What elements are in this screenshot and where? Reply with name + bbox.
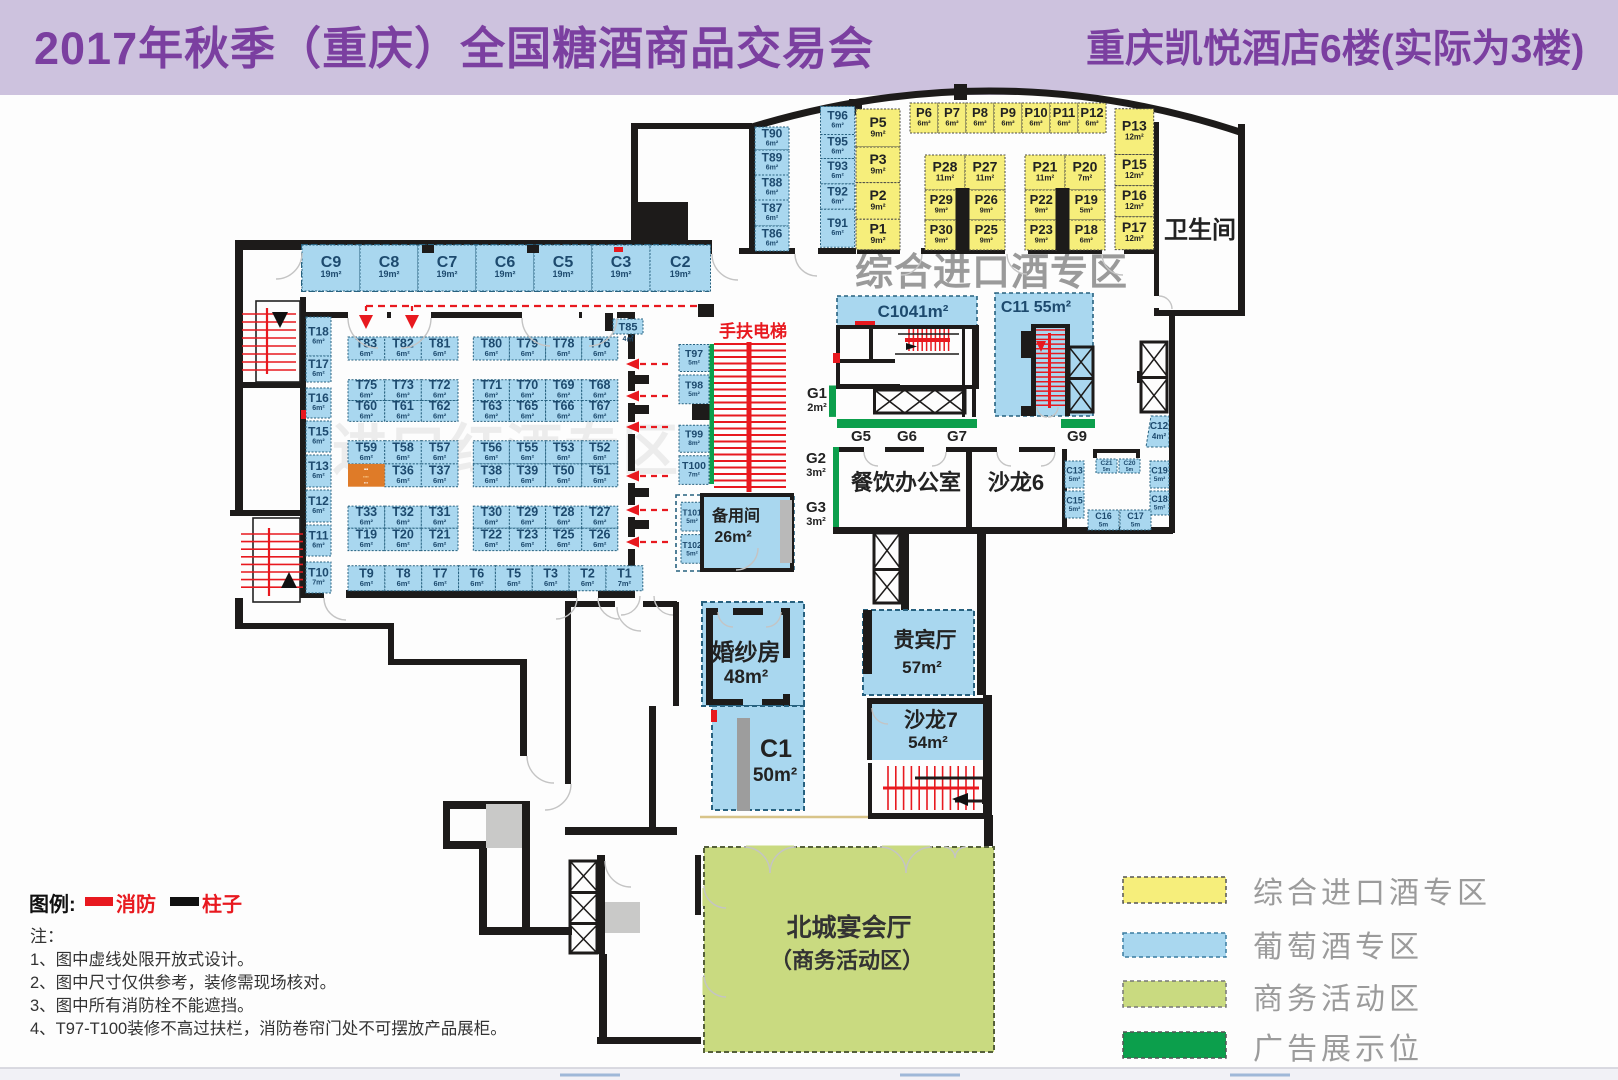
svg-text:5m²: 5m² [688,391,700,398]
svg-text:19m²: 19m² [670,269,691,279]
svg-text:T91: T91 [827,216,848,230]
svg-text:6m²: 6m² [973,119,987,128]
svg-text:T97: T97 [685,348,703,360]
svg-text:2、图中尺寸仅供参考，装修需现场核对。: 2、图中尺寸仅供参考，装修需现场核对。 [30,973,336,992]
svg-text:6m²: 6m² [521,453,535,462]
svg-text:6m²: 6m² [360,453,374,462]
svg-text:4m²: 4m² [1152,432,1167,441]
svg-text:6m²: 6m² [521,349,535,358]
svg-text:6m²: 6m² [831,149,844,156]
svg-text:6m²: 6m² [485,476,499,485]
svg-text:P27: P27 [973,159,998,175]
svg-text:6m²: 6m² [360,411,374,420]
svg-text:9m²: 9m² [935,236,949,245]
svg-text:5m: 5m [1131,522,1141,529]
svg-text:综合进口酒专区: 综合进口酒专区 [1253,877,1491,910]
svg-text:C1: C1 [760,735,792,763]
svg-text:6m²: 6m² [593,540,607,549]
svg-text:G5: G5 [851,428,871,445]
svg-text:7m²: 7m² [688,472,700,479]
svg-text:6m²: 6m² [1080,236,1094,245]
svg-text:G9: G9 [1067,428,1087,445]
svg-text:T100: T100 [682,460,706,472]
svg-text:C11 55m²: C11 55m² [1001,299,1071,316]
svg-text:6m²: 6m² [593,411,607,420]
svg-text:6m²: 6m² [433,540,447,549]
svg-text:11m²: 11m² [1036,174,1055,183]
svg-text:6m²: 6m² [507,579,521,588]
svg-text:备用间: 备用间 [711,506,760,525]
svg-text:P21: P21 [1033,159,1058,175]
svg-text:5m²: 5m² [686,550,698,557]
svg-text:12m²: 12m² [1125,171,1144,180]
svg-text:P28: P28 [933,159,958,175]
svg-text:6m²: 6m² [433,518,447,527]
svg-text:5m²: 5m² [688,360,700,367]
svg-text:▪▪▪▪: ▪▪▪▪ [363,474,369,479]
svg-text:6m²: 6m² [312,543,325,550]
svg-text:T17: T17 [308,357,329,371]
svg-text:▪▪: ▪▪ [364,467,368,473]
svg-text:19m²: 19m² [320,269,341,279]
svg-text:餐饮办公室: 餐饮办公室 [851,470,961,495]
svg-text:T86: T86 [762,227,783,241]
svg-text:12m²: 12m² [1125,133,1144,142]
svg-text:6m²: 6m² [1029,119,1043,128]
svg-text:6m²: 6m² [831,173,844,180]
svg-text:6m²: 6m² [360,349,374,358]
svg-text:6m²: 6m² [557,476,571,485]
svg-text:5m: 5m [1126,467,1134,473]
svg-text:19m²: 19m² [552,269,573,279]
svg-text:6m²: 6m² [396,476,410,485]
svg-text:综合进口酒专区: 综合进口酒专区 [855,252,1128,294]
svg-text:6m²: 6m² [396,518,410,527]
svg-text:5m: 5m [1099,522,1109,529]
svg-text:G2: G2 [806,450,826,467]
svg-text:6m²: 6m² [557,349,571,358]
svg-text:注：: 注： [30,927,64,946]
svg-text:6m²: 6m² [360,579,374,588]
svg-text:6m²: 6m² [397,579,411,588]
svg-text:9m²: 9m² [870,165,885,175]
svg-text:6m²: 6m² [433,579,447,588]
svg-text:5m²: 5m² [1080,206,1094,215]
svg-text:6m²: 6m² [396,349,410,358]
svg-text:19m²: 19m² [494,269,515,279]
svg-text:6m²: 6m² [766,141,779,148]
svg-text:19m²: 19m² [436,269,457,279]
svg-text:7m²: 7m² [618,579,632,588]
svg-text:3m²: 3m² [806,467,826,479]
svg-text:5m²: 5m² [1154,505,1166,512]
svg-text:G7: G7 [947,428,967,445]
svg-text:T88: T88 [762,176,783,190]
svg-text:C15: C15 [1066,496,1083,506]
svg-text:T90: T90 [762,127,783,141]
svg-text:6m²: 6m² [312,371,325,378]
svg-text:4㎡: 4㎡ [623,334,634,343]
svg-text:沙龙6: 沙龙6 [988,470,1044,495]
svg-text:卫生间: 卫生间 [1164,217,1236,244]
svg-text:9m²: 9m² [980,206,994,215]
svg-text:6m²: 6m² [544,579,558,588]
svg-text:消防: 消防 [116,892,156,916]
svg-text:9m²: 9m² [980,236,994,245]
svg-text:P17: P17 [1122,219,1147,235]
svg-text:6m²: 6m² [917,119,931,128]
svg-text:T102: T102 [682,540,702,550]
svg-text:4、T97-T100装修不高过扶栏，消防卷帘门处不可摆放产品: 4、T97-T100装修不高过扶栏，消防卷帘门处不可摆放产品展柜。 [30,1019,507,1038]
svg-text:5m²: 5m² [686,518,698,525]
svg-text:9m²: 9m² [870,201,885,211]
svg-text:6m²: 6m² [312,439,325,446]
svg-text:T16: T16 [308,391,329,405]
svg-text:19m²: 19m² [378,269,399,279]
svg-text:2017年秋季（重庆）全国糖酒商品交易会: 2017年秋季（重庆）全国糖酒商品交易会 [34,23,874,74]
svg-text:重庆凯悦酒店6楼(实际为3楼): 重庆凯悦酒店6楼(实际为3楼) [1086,28,1584,71]
svg-text:1、图中虚线处限开放式设计。: 1、图中虚线处限开放式设计。 [30,950,254,969]
svg-text:6m²: 6m² [831,199,844,206]
svg-text:P20: P20 [1073,159,1098,175]
svg-text:T87: T87 [762,201,783,215]
svg-text:贵宾厅: 贵宾厅 [894,628,957,652]
svg-text:6m²: 6m² [557,518,571,527]
svg-text:48m²: 48m² [724,667,768,688]
svg-text:7m²: 7m² [312,580,325,587]
svg-text:T12: T12 [308,494,329,508]
svg-text:6m²: 6m² [945,119,959,128]
svg-text:T93: T93 [827,159,848,173]
svg-text:葡萄酒专区: 葡萄酒专区 [1253,931,1423,964]
svg-text:6m²: 6m² [1057,119,1071,128]
svg-text:6m²: 6m² [360,540,374,549]
svg-text:12m²: 12m² [1125,202,1144,211]
svg-text:6m²: 6m² [485,453,499,462]
svg-text:9m²: 9m² [870,129,885,139]
svg-text:G1: G1 [807,385,827,402]
svg-text:5m²: 5m² [1069,476,1081,483]
svg-text:6m²: 6m² [396,453,410,462]
svg-text:6m²: 6m² [485,411,499,420]
svg-text:T18: T18 [308,325,329,339]
svg-text:9m²: 9m² [935,206,949,215]
svg-text:6m²: 6m² [1085,119,1099,128]
svg-text:6m²: 6m² [557,453,571,462]
svg-text:7m²: 7m² [1078,174,1093,183]
svg-text:54m²: 54m² [908,733,948,752]
svg-text:T92: T92 [827,185,848,199]
svg-text:G3: G3 [806,499,826,516]
svg-text:2m²: 2m² [807,402,827,414]
svg-text:C16: C16 [1095,511,1112,521]
svg-text:C1041m²: C1041m² [878,302,949,321]
svg-text:C18: C18 [1151,494,1168,504]
svg-text:6m²: 6m² [312,405,325,412]
svg-text:T13: T13 [308,459,329,473]
svg-text:沙龙7: 沙龙7 [904,708,958,732]
svg-text:北城宴会厅: 北城宴会厅 [786,913,911,942]
svg-text:C20: C20 [1124,460,1136,467]
svg-text:T101: T101 [682,508,702,518]
svg-text:T10: T10 [308,566,329,580]
svg-text:6m²: 6m² [312,508,325,515]
svg-text:T15: T15 [308,425,329,439]
svg-text:6m²: 6m² [581,579,595,588]
svg-text:6m²: 6m² [766,190,779,197]
svg-text:6m²: 6m² [360,518,374,527]
svg-text:6m²: 6m² [312,473,325,480]
svg-text:5m²: 5m² [1154,476,1166,483]
svg-text:T98: T98 [685,379,703,391]
svg-text:6m²: 6m² [593,453,607,462]
svg-text:6m²: 6m² [831,123,844,130]
svg-text:6m²: 6m² [521,476,535,485]
svg-text:6m²: 6m² [396,411,410,420]
svg-text:11m²: 11m² [976,174,995,183]
svg-text:12m²: 12m² [1125,234,1144,243]
svg-text:57m²: 57m² [902,658,942,677]
svg-text:P13: P13 [1122,118,1147,134]
svg-text:C21: C21 [1101,460,1113,467]
svg-text:6m²: 6m² [521,411,535,420]
svg-text:6m²: 6m² [521,540,535,549]
svg-text:6m²: 6m² [433,476,447,485]
svg-text:3、图中所有消防栓不能遮挡。: 3、图中所有消防栓不能遮挡。 [30,996,254,1015]
svg-text:手扶电梯: 手扶电梯 [719,321,787,341]
svg-text:P15: P15 [1122,156,1147,172]
svg-text:9m²: 9m² [1035,236,1049,245]
svg-text:T99: T99 [685,429,703,441]
svg-text:26m²: 26m² [714,529,751,546]
svg-text:3m²: 3m² [806,516,826,528]
svg-text:11m²: 11m² [936,174,955,183]
svg-text:T96: T96 [827,109,848,123]
svg-text:婚纱房: 婚纱房 [712,639,781,665]
svg-text:6m²: 6m² [433,453,447,462]
svg-text:50m²: 50m² [753,765,797,786]
svg-text:C13: C13 [1066,466,1083,476]
svg-text:广告展示位: 广告展示位 [1253,1033,1423,1066]
svg-text:T11: T11 [308,529,328,543]
svg-text:T95: T95 [827,135,848,149]
svg-text:6m²: 6m² [470,579,484,588]
svg-text:▪▪▪: ▪▪▪ [364,480,369,485]
svg-text:6m²: 6m² [766,241,779,248]
svg-text:6m²: 6m² [485,518,499,527]
svg-text:G6: G6 [897,428,917,445]
svg-text:图例:: 图例: [29,892,76,916]
svg-text:9m²: 9m² [1035,206,1049,215]
svg-text:6m²: 6m² [766,165,779,172]
svg-text:6m²: 6m² [485,349,499,358]
svg-text:19m²: 19m² [610,269,631,279]
svg-text:6m²: 6m² [593,476,607,485]
svg-text:6m²: 6m² [831,230,844,237]
svg-text:6m²: 6m² [557,540,571,549]
svg-text:6m²: 6m² [766,215,779,222]
svg-text:6m²: 6m² [521,518,535,527]
svg-text:6m²: 6m² [1001,119,1015,128]
svg-text:6m²: 6m² [557,411,571,420]
svg-text:6m²: 6m² [485,540,499,549]
svg-text:5m²: 5m² [1069,506,1081,513]
svg-text:C17: C17 [1127,511,1144,521]
svg-text:6m²: 6m² [433,411,447,420]
svg-text:P16: P16 [1122,187,1147,203]
svg-text:T89: T89 [762,151,783,165]
svg-text:9m²: 9m² [870,235,885,245]
svg-text:C12: C12 [1150,421,1169,432]
svg-text:商务活动区: 商务活动区 [1253,983,1423,1016]
svg-text:T85: T85 [619,321,638,333]
svg-text:6m²: 6m² [433,349,447,358]
svg-text:柱子: 柱子 [202,892,242,916]
svg-text:6m²: 6m² [312,339,325,346]
svg-text:C19: C19 [1151,466,1168,476]
svg-text:8m²: 8m² [688,440,700,447]
svg-text:5m: 5m [1103,467,1111,473]
svg-text:6m²: 6m² [396,540,410,549]
svg-text:6m²: 6m² [593,349,607,358]
svg-text:6m²: 6m² [593,518,607,527]
svg-text:（商务活动区）: （商务活动区） [770,948,924,973]
